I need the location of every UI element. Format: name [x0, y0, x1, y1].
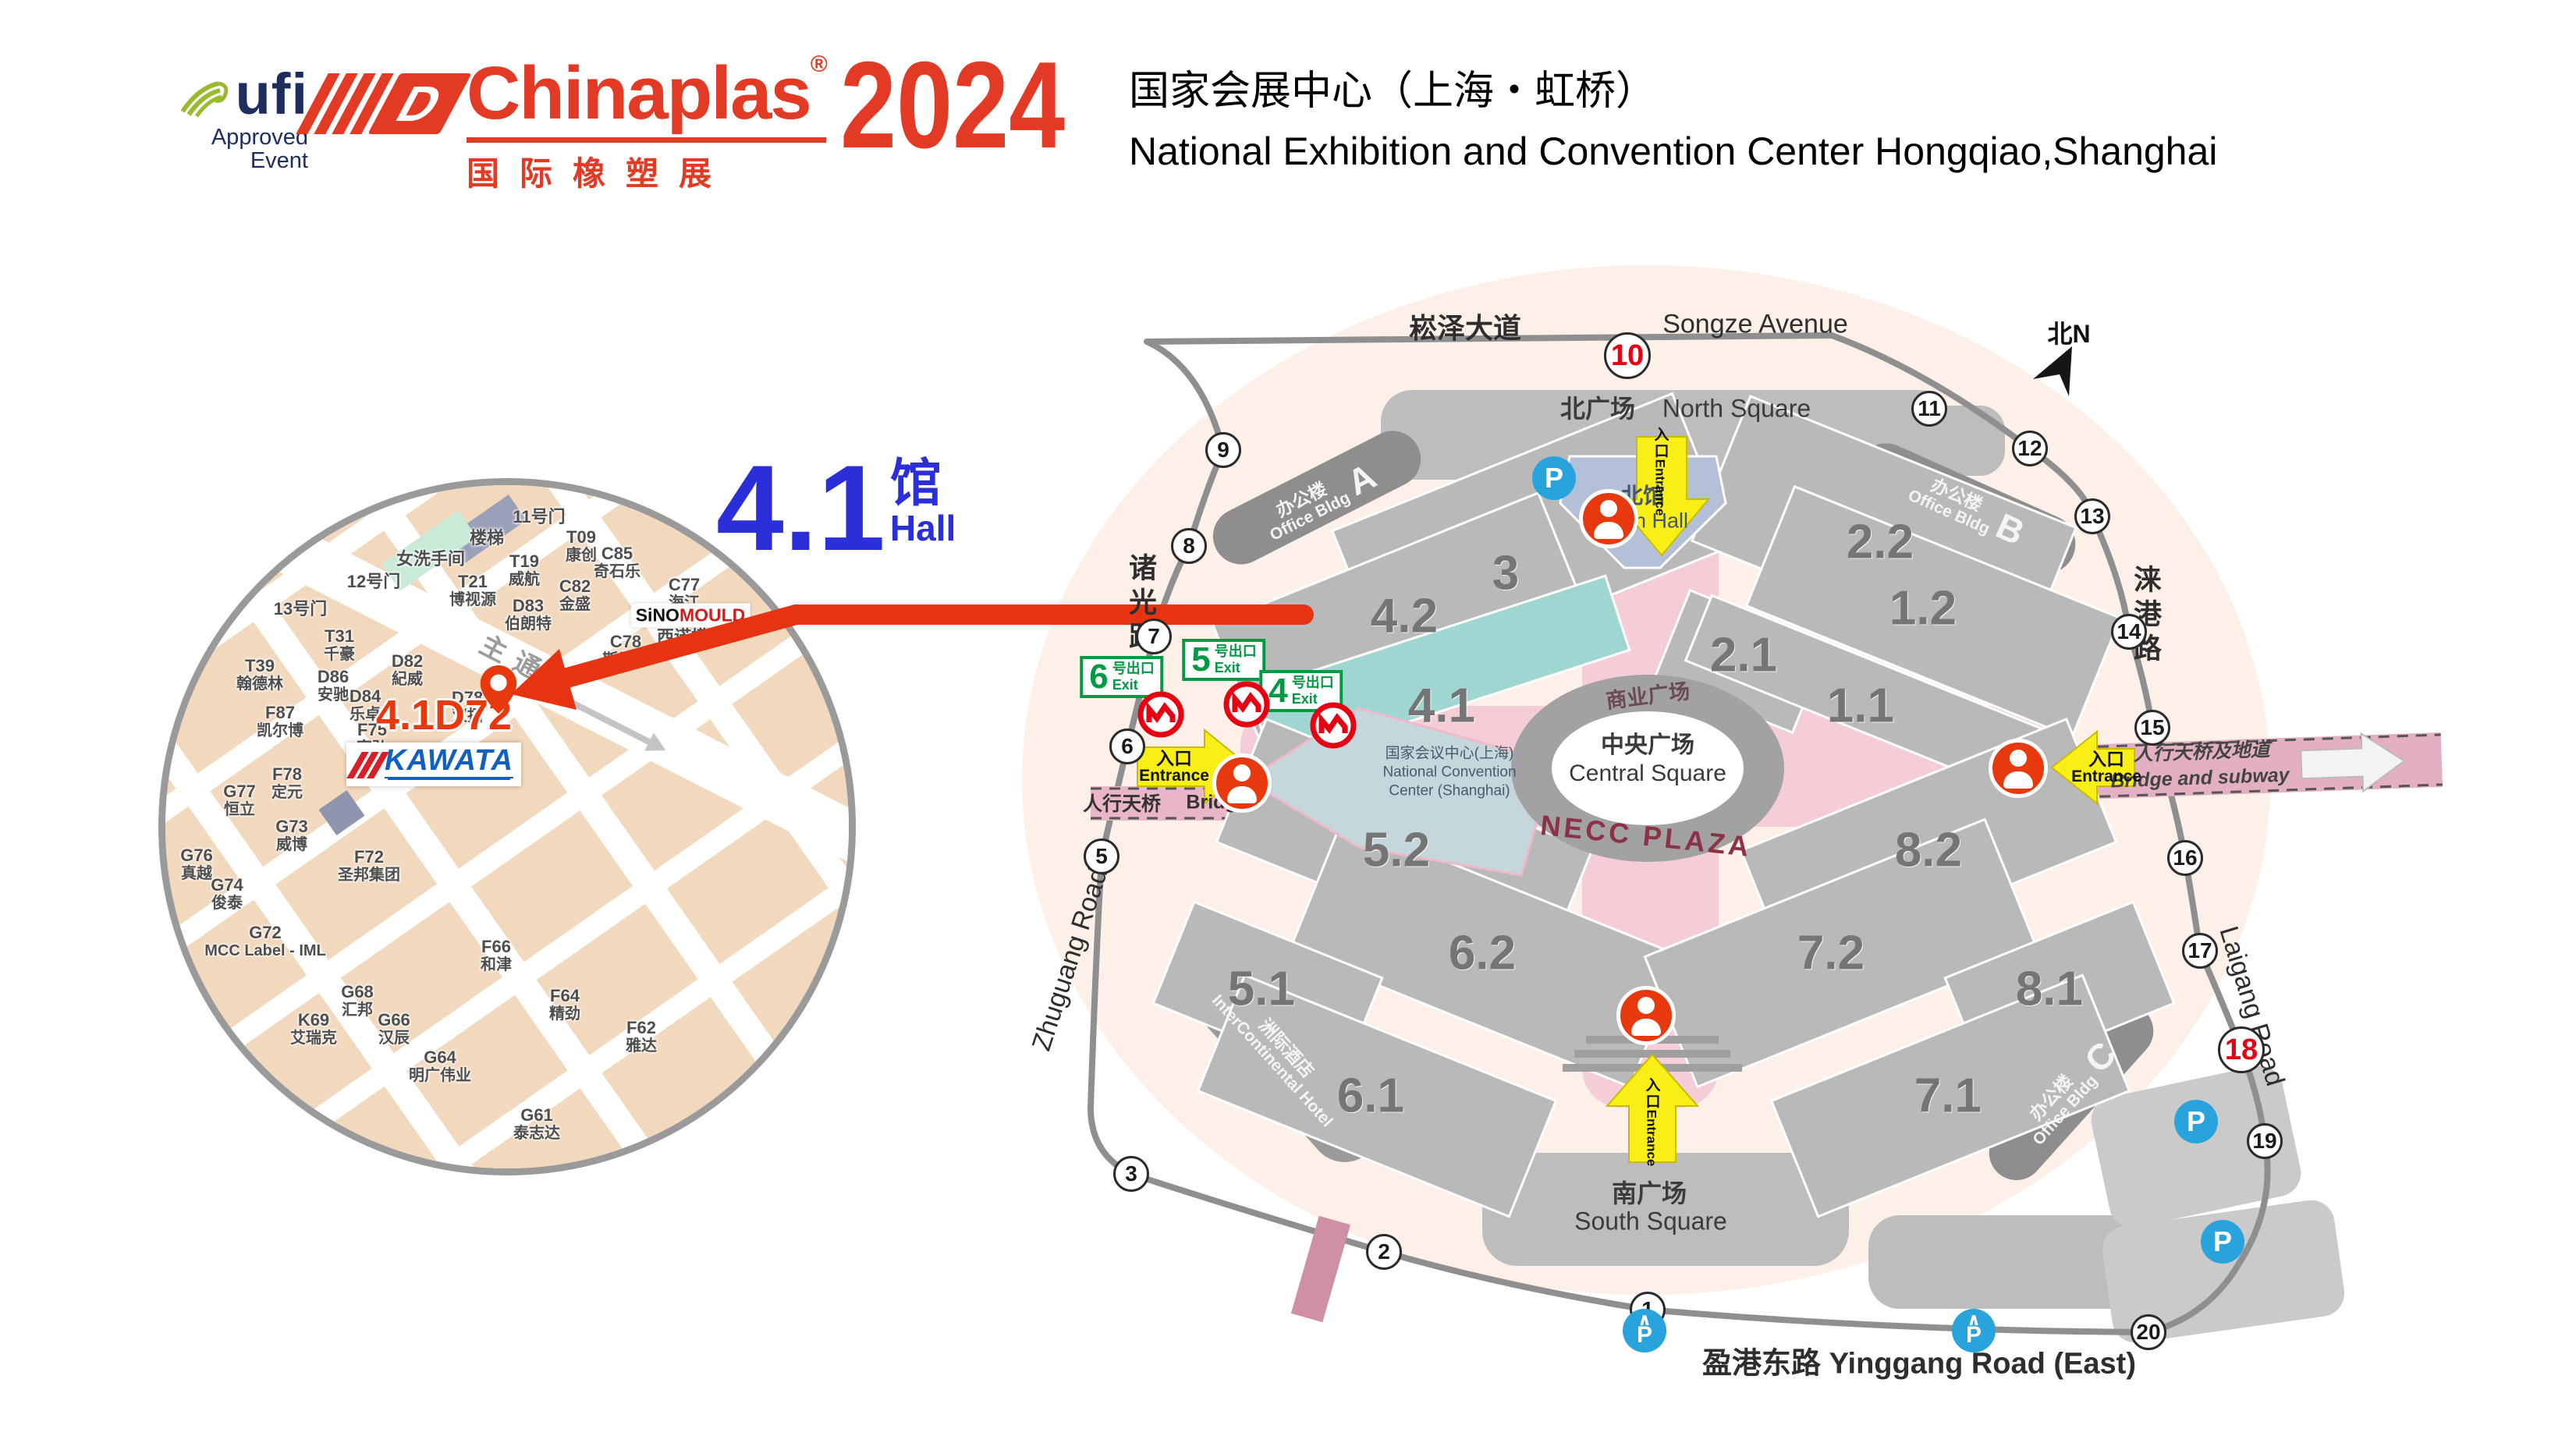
booth-grid [158, 478, 856, 1175]
booth-label: C82 金盛 [559, 577, 591, 613]
parking-icon: P [2201, 1220, 2244, 1264]
booth-label: 西诺模具 [657, 628, 726, 647]
booth-label: 11号门 [513, 508, 565, 526]
north-square-cn: 北广场 [1560, 389, 1635, 425]
kawata-wordmark: KAWATA [385, 746, 513, 778]
hall-number: 6.2 [1449, 926, 1516, 981]
booth-label: G76 真越 [180, 846, 213, 882]
hall-number: 8.2 [1895, 823, 1962, 878]
booth-label: C78 斯曼尔 [602, 633, 649, 668]
hall-number: 4.1 [1408, 679, 1475, 734]
booth-label: T21 博视源 [449, 573, 496, 608]
booth-label: F62 雅达 [626, 1019, 657, 1055]
road-point-number: 19 [2247, 1123, 2283, 1159]
songze-avenue-en: Songze Avenue [1662, 310, 1848, 340]
south-bridge-stub [1291, 1216, 1350, 1323]
booth-label: C85 奇石乐 [594, 544, 640, 580]
booth-label: D83 伯朗特 [505, 597, 552, 633]
road-point-number: 16 [2167, 840, 2203, 876]
hall-number: 7.1 [1914, 1069, 1982, 1124]
hall-number: 2.1 [1710, 628, 1777, 683]
booth-label: F78 定元 [271, 765, 303, 801]
road-point-number: 10 [1604, 332, 1651, 379]
road-point-number: 11 [1911, 391, 1947, 427]
person-icon [1989, 739, 2048, 798]
metro-exit-sign: 5 号出口Exit [1182, 639, 1265, 681]
road-point-number: 5 [1084, 838, 1119, 874]
entrance-label: 入口Entrance [1645, 1077, 1659, 1167]
sinomould-black: SiNO [636, 605, 679, 626]
hall-number: 8.1 [2016, 962, 2083, 1017]
yinggang-road: 盈港东路 Yinggang Road (East) [1702, 1339, 2136, 1382]
sinomould-logo: SiNOMOULD [631, 604, 750, 628]
hall-number: 5.1 [1228, 962, 1295, 1017]
person-icon [1616, 986, 1676, 1045]
hall-number: 2.2 [1847, 515, 1914, 570]
booth-label: G64 明广伟业 [409, 1048, 471, 1084]
road-point-number: 12 [2012, 431, 2048, 466]
booth-label: 13号门 [274, 600, 327, 619]
kawata-stripes-icon [354, 752, 385, 778]
parking-icon: P [1532, 456, 1576, 500]
road-point-number: 3 [1113, 1156, 1149, 1192]
booth-label: G61 泰志达 [513, 1106, 560, 1142]
booth-label: T31 千豪 [324, 627, 355, 663]
person-icon [1579, 489, 1638, 548]
booth-label: G77 恒立 [223, 782, 256, 818]
location-pin-icon [480, 665, 517, 714]
road-point-number: 9 [1205, 432, 1241, 468]
page: ufi Approved Event D Chinaplas® 国际橡塑展 20… [0, 0, 2576, 1450]
kawata-logo: KAWATA [346, 743, 521, 786]
south-square-en: South Square [1574, 1207, 1727, 1236]
booth-label: T09 康创 [566, 528, 597, 564]
road-point-number: 20 [2131, 1314, 2166, 1350]
hall-number: 5.2 [1363, 823, 1430, 878]
booth-label: K69 艾瑞克 [290, 1011, 337, 1047]
songze-avenue-cn: 崧泽大道 [1409, 306, 1521, 346]
booth-label: G72 MCC Label - IML [204, 924, 326, 959]
booth-label: 12号门 [347, 573, 400, 591]
compass-label: 北N [2047, 314, 2090, 350]
road-point-number: 8 [1171, 528, 1207, 564]
booth-label: T19 威航 [509, 552, 540, 588]
booth-label: F66 和津 [481, 938, 512, 973]
road-point-number: 17 [2182, 933, 2218, 969]
booth-label: G66 汉辰 [378, 1011, 410, 1047]
hall-number: 6.1 [1337, 1069, 1404, 1124]
hall-4-1-inset-map: 11号门 楼梯 女洗手间 12号门 13号门 T09 康创 [158, 478, 856, 1175]
booth-label: D86 安驰 [318, 668, 349, 704]
road-point-number: 15 [2134, 710, 2170, 746]
booth-label: F64 精劲 [549, 987, 580, 1023]
road-point-number: 7 [1136, 619, 1172, 654]
booth-label: F87 凯尔博 [257, 704, 303, 739]
metro-logo-icon [1223, 681, 1270, 728]
hall-number: 7.2 [1797, 926, 1865, 981]
hall-number: 1.1 [1827, 679, 1894, 734]
south-square-cn: 南广场 [1612, 1174, 1687, 1210]
central-square-cn: 中央广场 [1601, 725, 1694, 760]
metro-logo-icon [1137, 691, 1184, 738]
road-point-number: 2 [1366, 1234, 1402, 1270]
entrance-label: 入口Entrance [1139, 749, 1209, 785]
parking-icon: P [2174, 1100, 2218, 1143]
road-point-number: 13 [2074, 498, 2110, 534]
sinomould-red: MOULD [679, 605, 745, 626]
booth-label: T39 翰德林 [236, 657, 283, 693]
hall-number: 4.2 [1371, 589, 1438, 644]
road-point-number: 14 [2111, 614, 2147, 650]
hall-number: 3 [1492, 546, 1519, 601]
north-square-en: North Square [1662, 395, 1811, 424]
parking-icon: P [1623, 1309, 1666, 1353]
booth-label: G74 俊泰 [211, 876, 243, 912]
booth-label: G73 威博 [275, 817, 308, 853]
booth-label: 女洗手间 [396, 550, 465, 569]
entrance-label: 入口Entrance [2071, 750, 2141, 785]
road-point-number: 18 [2218, 1026, 2265, 1073]
west-bridge-cn: 人行天桥 [1083, 789, 1161, 817]
booth-label: G68 汇邦 [341, 983, 374, 1019]
convention-center-label: 国家会议中心(上海) National Convention Center (S… [1348, 744, 1551, 799]
booth-label: F72 圣邦集团 [338, 848, 400, 884]
person-icon [1212, 753, 1272, 813]
hall-number: 1.2 [1889, 581, 1957, 636]
booth-label: D82 紀威 [392, 652, 423, 688]
booth-label: 楼梯 [470, 529, 504, 548]
parking-icon: P [1952, 1309, 1996, 1353]
metro-logo-icon [1310, 702, 1357, 749]
entrance-label: 入口Entrance [1653, 427, 1668, 516]
central-square-en: Central Square [1569, 760, 1726, 787]
